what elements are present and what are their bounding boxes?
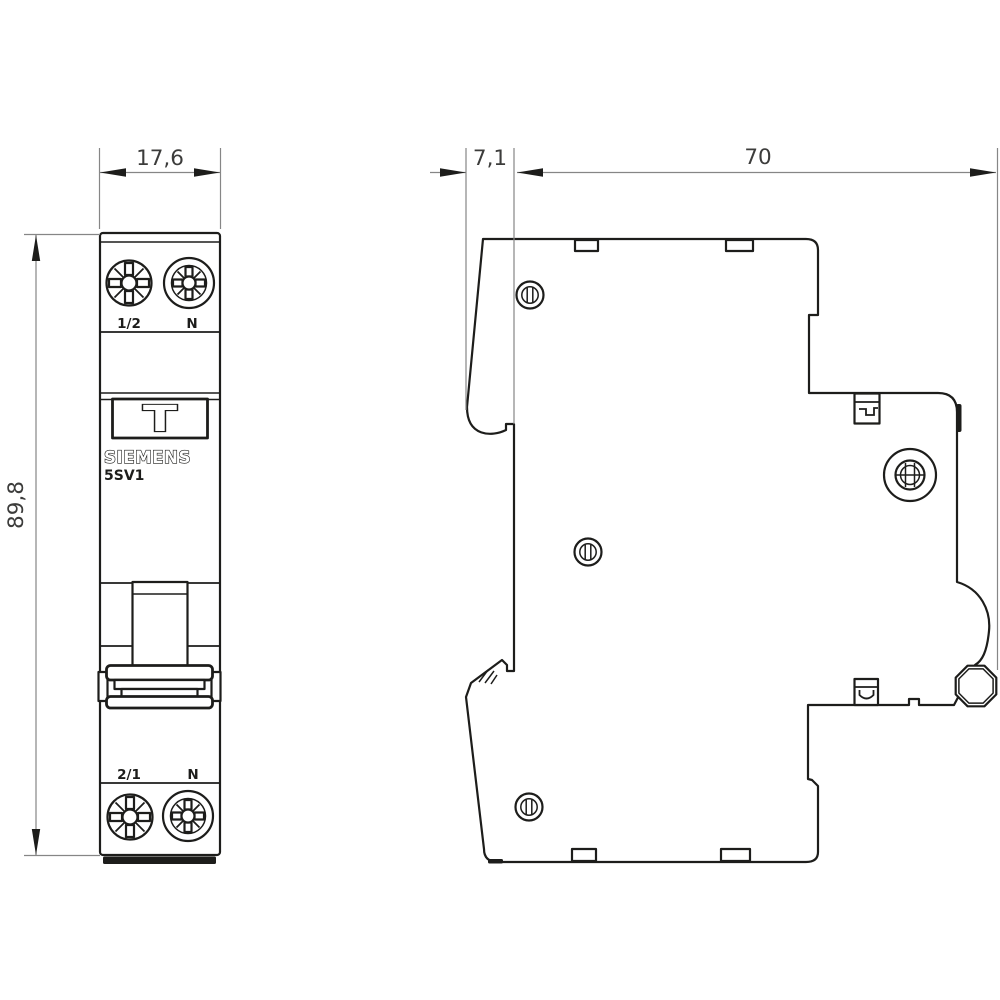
brand-label: SIEMENS <box>104 448 191 468</box>
technical-drawing-page: 1/2 N T SIEMENS 5SV1 2/1 N <box>0 0 1000 1000</box>
casing-tab-bottom-2 <box>721 849 750 861</box>
housing-screw-bottom <box>516 794 543 821</box>
terminal-label-top-left: 1/2 <box>117 316 141 332</box>
dimension-front-height: 89,8 <box>4 235 100 856</box>
side-body-outline <box>466 239 989 862</box>
test-button-label: T <box>143 399 178 440</box>
housing-screw-top <box>517 282 544 309</box>
terminal-screw-bottom-right <box>163 791 213 841</box>
casing-tab-top-2 <box>726 240 753 251</box>
dimension-front-width: 17,6 <box>100 146 221 229</box>
casing-tab-top-1 <box>575 240 598 251</box>
dim-label-front-width: 17,6 <box>136 146 184 171</box>
bottom-rail-band <box>103 857 216 865</box>
adjustment-wheel <box>956 666 997 707</box>
dim-label-side-total-depth: 70 <box>744 145 771 170</box>
terminal-label-top-right: N <box>186 316 197 332</box>
toggle-knob <box>107 666 213 681</box>
front-view: 1/2 N T SIEMENS 5SV1 2/1 N <box>99 233 221 864</box>
terminal-label-bottom-left: 2/1 <box>117 767 141 783</box>
casing-tab-bottom-1 <box>572 849 596 861</box>
terminal-screw-top-left <box>107 261 152 306</box>
foot-step <box>488 859 503 864</box>
side-view <box>466 239 996 864</box>
terminal-label-bottom-right: N <box>187 767 198 783</box>
housing-screw-middle <box>575 539 602 566</box>
dim-label-front-height: 89,8 <box>4 481 29 529</box>
din-latch-bottom <box>855 679 879 705</box>
terminal-screw-bottom-left <box>108 795 153 840</box>
circuit-breaker-dimension-diagram: 1/2 N T SIEMENS 5SV1 2/1 N <box>0 0 1000 1000</box>
housing-screw-large <box>884 449 936 501</box>
test-button-window: T <box>113 399 208 440</box>
terminal-screw-top-right <box>164 258 214 308</box>
rail-clip-tab <box>956 404 962 432</box>
din-latch-top <box>855 394 880 424</box>
model-label: 5SV1 <box>104 468 144 484</box>
dim-label-side-front-depth: 7,1 <box>473 146 507 171</box>
